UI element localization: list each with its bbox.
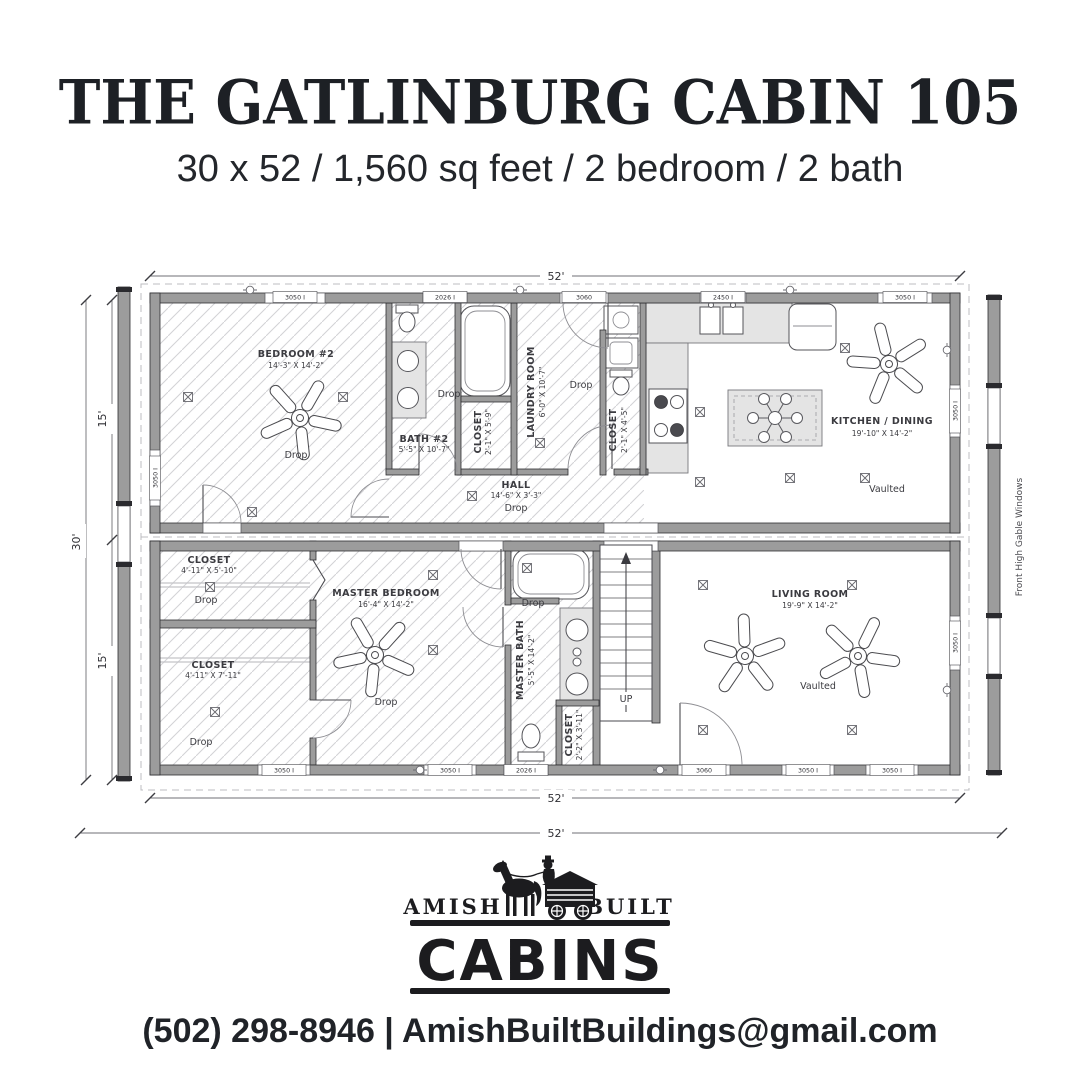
laundry-size: 6'-0" X 10'-7" — [538, 367, 547, 418]
kitchen-size: 19'-10" X 14'-2" — [852, 429, 913, 438]
closet-stairs-size: 2'-2" X 3'-11" — [575, 710, 584, 761]
window-label: 3050 I — [285, 295, 305, 302]
window-label: 2026 I — [435, 295, 455, 302]
master-bath-ceiling: Drop — [522, 598, 545, 609]
window-label: 3050 I — [882, 768, 902, 775]
flyer-page: THE GATLINBURG CABIN 105 30 x 52 / 1,560… — [0, 0, 1080, 1080]
window-label: 3050 I — [895, 295, 915, 302]
hall-size: 14'-6" X 3'-3" — [491, 491, 542, 500]
closet1-name: CLOSET — [188, 555, 231, 566]
window-label: 3050 I — [153, 468, 160, 488]
master-bedroom-size: 16'-4" X 14'-2" — [358, 600, 414, 609]
logo-word-cabins: CABINS — [416, 929, 663, 994]
window-label: 3050 I — [440, 768, 460, 775]
master-bedroom-ceiling: Drop — [375, 697, 398, 708]
stairs: UP — [600, 545, 652, 721]
closet2-size: 4'-11" X 7'-11" — [185, 671, 241, 680]
window-label: 3050 I — [274, 768, 294, 775]
closet-stairs-name: CLOSET — [564, 713, 575, 756]
bath2-ceiling: Drop — [438, 389, 461, 400]
bedroom2-ceiling: Drop — [285, 450, 308, 461]
dim-left-lower-half: 15' — [96, 652, 109, 669]
closet-kitchen-size: 2'-1" X 4'-5" — [620, 407, 629, 453]
closet1-ceiling: Drop — [195, 595, 218, 606]
ceiling-fan-icon — [689, 601, 803, 715]
window-label: 3050 I — [953, 401, 960, 421]
ceiling-fan-icon — [834, 308, 948, 423]
kitchen-fixtures — [646, 303, 836, 474]
door-label: 3060 — [696, 768, 712, 775]
window-label: 2450 I — [713, 295, 733, 302]
closet1-size: 4'-11" X 5'-10" — [181, 566, 237, 575]
living-ceiling: Vaulted — [800, 681, 836, 692]
horse-and-wagon-icon — [491, 856, 598, 921]
closet-kitchen-name: CLOSET — [608, 408, 619, 451]
door-label: 3060 — [576, 295, 592, 302]
living-size: 19'-9" X 14'-2" — [782, 601, 838, 610]
amish-built-cabins-logo: AMISH BUILT — [402, 856, 674, 995]
bedroom2-name: BEDROOM #2 — [258, 349, 334, 360]
dim-bottom-width-outer: 52' — [547, 827, 564, 840]
window-label: 3050 I — [798, 768, 818, 775]
master-bath-size: 5'-5" X 14'-2" — [527, 635, 536, 686]
kitchen-name: KITCHEN / DINING — [831, 416, 933, 427]
logo-word-amish: AMISH — [402, 894, 502, 919]
bath2-name: BATH #2 — [400, 434, 449, 445]
master-bath-name: MASTER BATH — [515, 620, 526, 700]
hall-ceiling: Drop — [505, 503, 528, 514]
left-wall-strip — [116, 287, 132, 781]
stairs-up-label: UP — [620, 694, 633, 705]
kitchen-ceiling: Vaulted — [869, 484, 905, 495]
dim-left-height: 30' — [70, 533, 83, 550]
front-gable-note: Front High Gable Windows — [1015, 477, 1025, 596]
logo-word-built: BUILT — [585, 894, 675, 919]
hall-name: HALL — [501, 480, 530, 491]
closet-bath2-name: CLOSET — [473, 410, 484, 453]
master-bedroom-name: MASTER BEDROOM — [332, 588, 439, 599]
dim-left-upper-half: 15' — [96, 410, 109, 427]
window-label: 2026 I — [516, 768, 536, 775]
laundry-name: LAUNDRY ROOM — [526, 346, 537, 437]
right-wall-strip: Front High Gable Windows — [986, 295, 1025, 775]
bath2-size: 5'-5" X 10'-7" — [399, 445, 450, 454]
closet2-name: CLOSET — [192, 660, 235, 671]
floorplan-drawing: UP BED — [0, 0, 1080, 1080]
closet-bath2-size: 2'-1" X 5'-9" — [484, 409, 493, 455]
window-label: 3050 I — [953, 633, 960, 653]
dim-top-width: 52' — [547, 270, 564, 283]
closet2-ceiling: Drop — [190, 737, 213, 748]
contact-info: (502) 298-8946 | AmishBuiltBuildings@gma… — [0, 1012, 1080, 1051]
bedroom2-size: 14'-3" X 14'-2" — [268, 361, 324, 370]
living-name: LIVING ROOM — [772, 589, 849, 600]
dim-bottom-width-inner: 52' — [547, 792, 564, 805]
laundry-ceiling: Drop — [570, 380, 593, 391]
